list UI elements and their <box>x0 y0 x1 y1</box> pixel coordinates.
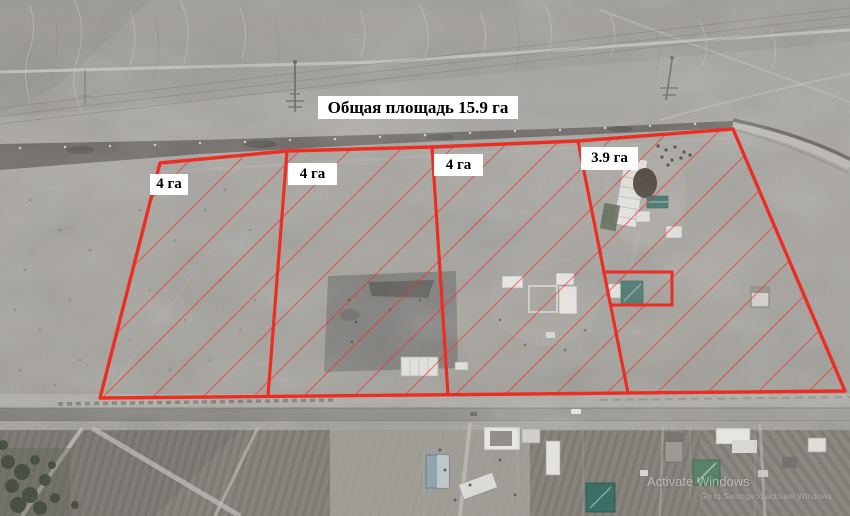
plot-1-area-label: 4 га <box>150 174 188 195</box>
aerial-photo <box>0 0 850 516</box>
annotated-aerial-map: Общая площадь 15.9 га 4 га 4 га 4 га 3.9… <box>0 0 850 516</box>
total-area-label: Общая площадь 15.9 га <box>318 96 518 119</box>
plot-3-area-label: 4 га <box>434 154 483 176</box>
plot-4-area-label: 3.9 га <box>581 147 638 170</box>
plot-2-area-label: 4 га <box>288 163 337 185</box>
